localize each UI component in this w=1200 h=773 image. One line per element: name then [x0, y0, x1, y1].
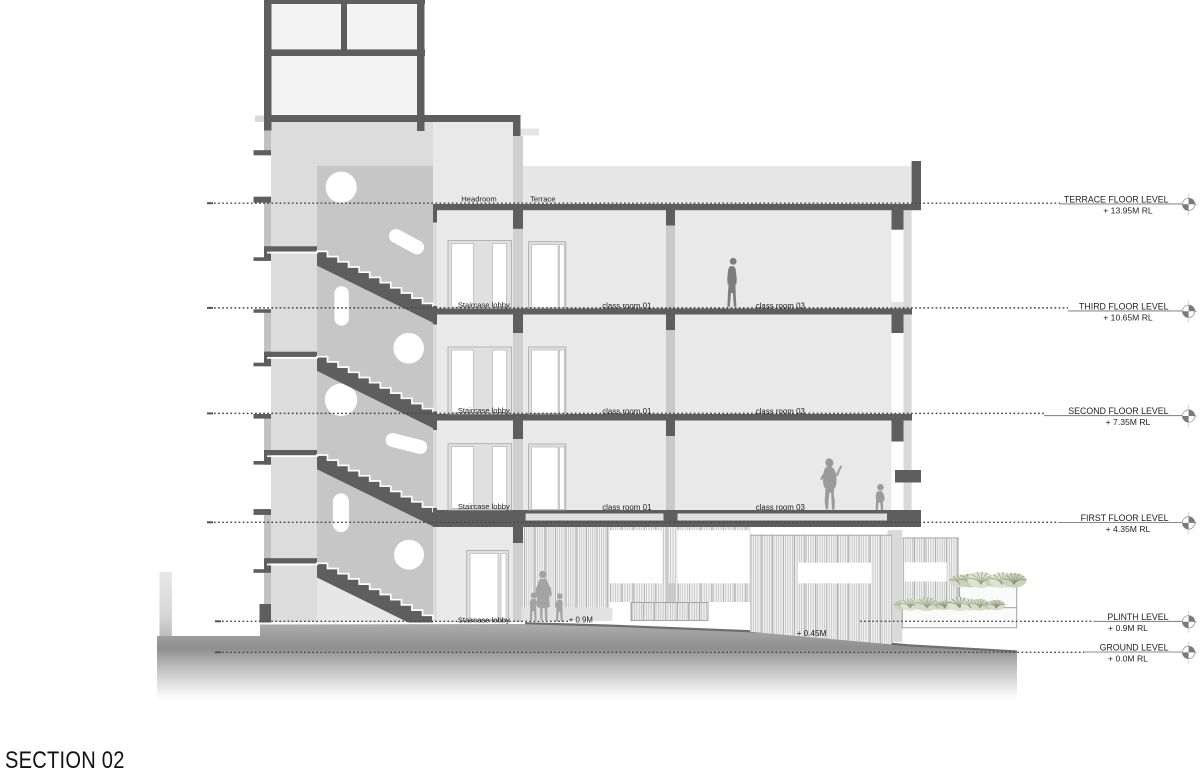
svg-text:class room 01: class room 01 [602, 301, 651, 310]
svg-text:class room 03: class room 03 [756, 301, 806, 310]
svg-text:SECTION 02: SECTION 02 [5, 746, 125, 773]
svg-text:PLINTH LEVEL: PLINTH LEVEL [1107, 612, 1168, 622]
svg-text:Staircase lobby: Staircase lobby [458, 406, 510, 415]
svg-text:class room 03: class room 03 [756, 407, 806, 416]
svg-text:Staircase lobby: Staircase lobby [458, 301, 510, 310]
svg-text:+ 0.45M: + 0.45M [797, 629, 827, 638]
svg-text:TERRACE FLOOR LEVEL: TERRACE FLOOR LEVEL [1064, 194, 1169, 204]
svg-text:+ 0.0M RL: + 0.0M RL [1108, 654, 1148, 664]
svg-text:+ 10.65M RL: + 10.65M RL [1103, 313, 1153, 323]
svg-text:SECOND FLOOR LEVEL: SECOND FLOOR LEVEL [1068, 406, 1168, 416]
svg-text:class room 01: class room 01 [602, 407, 651, 416]
svg-text:+ 0.9M: + 0.9M [569, 616, 593, 625]
svg-text:Terrace: Terrace [530, 195, 555, 204]
svg-text:Headroom: Headroom [461, 195, 496, 204]
svg-text:Staircase lobby: Staircase lobby [458, 502, 510, 511]
svg-text:FIRST FLOOR LEVEL: FIRST FLOOR LEVEL [1081, 513, 1169, 523]
svg-text:+ 4.35M RL: + 4.35M RL [1106, 524, 1151, 534]
svg-text:+ 7.35M RL: + 7.35M RL [1106, 417, 1151, 427]
svg-text:class room 01: class room 01 [602, 503, 651, 512]
svg-text:GROUND LEVEL: GROUND LEVEL [1100, 642, 1169, 652]
svg-text:Staircase lobby: Staircase lobby [458, 616, 510, 625]
svg-text:+ 0.9M RL: + 0.9M RL [1108, 623, 1148, 633]
svg-text:class room 03: class room 03 [756, 503, 806, 512]
svg-text:THIRD FLOOR LEVEL: THIRD FLOOR LEVEL [1079, 301, 1169, 311]
svg-text:+ 13.95M RL: + 13.95M RL [1103, 206, 1153, 216]
